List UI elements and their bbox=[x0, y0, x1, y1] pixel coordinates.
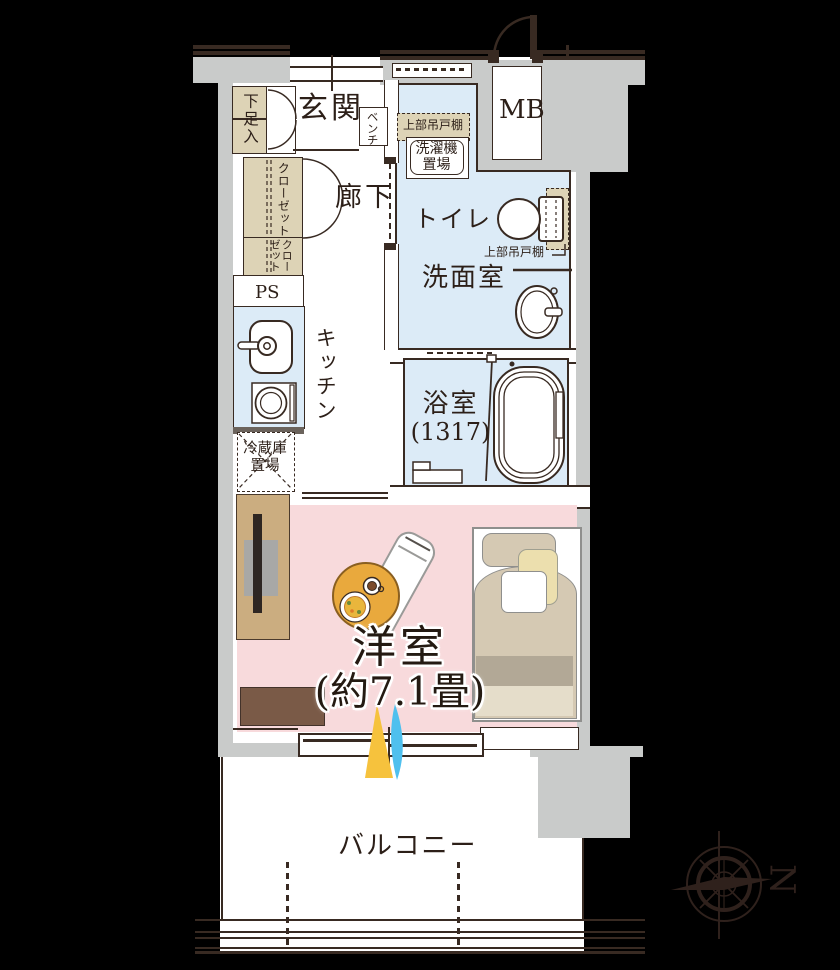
toilet-tank bbox=[539, 197, 563, 241]
balcony-label: バルコニー bbox=[338, 832, 477, 861]
fridge-line2: 置場 bbox=[237, 458, 293, 475]
closet2-col1: クロー bbox=[280, 239, 292, 273]
western-size: (約7.1畳) bbox=[280, 672, 520, 715]
shoe-door-arc-bottom bbox=[268, 120, 296, 149]
coffee-cup bbox=[368, 582, 377, 591]
food-garnish-1 bbox=[347, 601, 351, 605]
washroom-door-cap-top bbox=[385, 158, 395, 163]
fridge-line1: 冷蔵庫 bbox=[237, 441, 293, 458]
fridge-label: 冷蔵庫 置場 bbox=[237, 441, 293, 476]
compass-north-label: N bbox=[762, 864, 801, 895]
toilet-cabinet-arrow bbox=[552, 244, 565, 255]
toilet-bowl bbox=[498, 199, 540, 239]
toilet-label: トイレ bbox=[414, 206, 492, 232]
kitchen-label: キッチン bbox=[313, 327, 336, 423]
vanity-tap bbox=[551, 288, 557, 294]
bathtub-panel bbox=[556, 392, 563, 438]
western-name: 洋室 bbox=[280, 624, 520, 672]
washroom-door-cap-bottom bbox=[385, 244, 395, 249]
meter-box-label: MB bbox=[499, 96, 545, 125]
shoe-door-arc-top bbox=[268, 90, 296, 119]
washroom-label: 洗面室 bbox=[422, 264, 506, 293]
entrance-door-jamb-right bbox=[533, 51, 542, 62]
closet2-label: クロー ゼット bbox=[268, 239, 292, 273]
toilet-upper-cabinet-label: 上部吊戸棚 bbox=[484, 246, 544, 259]
western-room-label: 洋室 (約7.1畳) bbox=[280, 624, 520, 715]
kitchen-faucet-base bbox=[258, 337, 276, 355]
shoe-cabinet-label: 下足入 bbox=[241, 93, 258, 146]
stove-body bbox=[252, 383, 296, 423]
entrance-door-arc bbox=[494, 17, 534, 57]
bath-name: 浴室 bbox=[403, 390, 498, 419]
bath-size: (1317) bbox=[403, 419, 498, 445]
corridor-label: 廊下 bbox=[335, 183, 395, 213]
food-garnish-2 bbox=[357, 610, 361, 614]
bath-label: 浴室 (1317) bbox=[403, 390, 498, 445]
closet2-col2: ゼット bbox=[268, 239, 280, 273]
bench-label: ベンチ bbox=[366, 111, 379, 146]
food bbox=[345, 597, 366, 618]
washer-line1: 洗濯機 bbox=[406, 141, 467, 157]
closet-label: クローゼット bbox=[276, 162, 289, 237]
vanity-faucet bbox=[545, 308, 562, 316]
washer-label: 洗濯機 置場 bbox=[406, 141, 467, 173]
bath-door-pivot bbox=[487, 355, 496, 362]
washer-line2: 置場 bbox=[406, 157, 467, 173]
food-garnish-3 bbox=[350, 609, 354, 613]
breeze-symbol bbox=[391, 704, 403, 780]
bath-step-1 bbox=[413, 470, 462, 483]
bath-step-2 bbox=[413, 462, 430, 470]
genkan-label: 玄関 bbox=[298, 92, 364, 125]
floor-plan: 玄関 下足入 ベンチ MB 廊下 クローゼット クロー ゼット PS キッチン … bbox=[0, 0, 840, 970]
bath-shower-dot bbox=[510, 362, 515, 367]
compass-icon bbox=[671, 831, 772, 939]
pipe-space-label: PS bbox=[255, 283, 279, 303]
laundry-upper-cabinet-label: 上部吊戸棚 bbox=[403, 119, 463, 132]
kitchen-faucet-lever bbox=[238, 342, 260, 349]
